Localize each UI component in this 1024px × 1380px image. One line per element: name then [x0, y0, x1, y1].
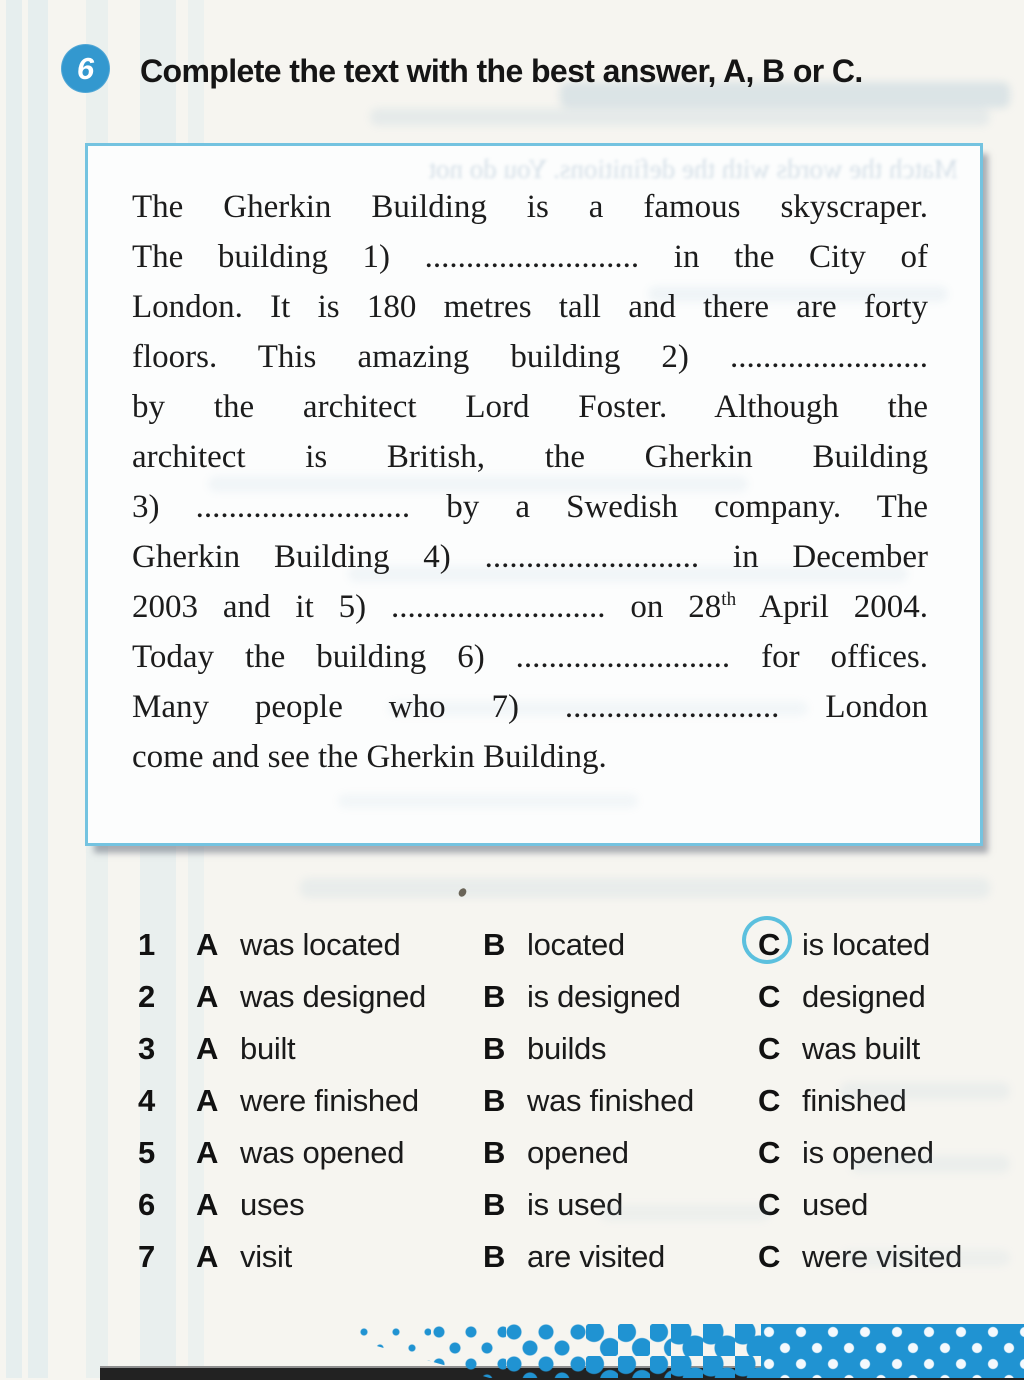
passage-box: Match the words with the definitions. Yo…: [85, 143, 983, 846]
option-row-2: 2 A was designed B is designed C designe…: [138, 971, 1024, 1023]
passage-line-part: 2003 and it 5) .........................…: [132, 589, 721, 625]
passage-line: Many people who 7) .....................…: [132, 682, 928, 732]
option-letter-c: C: [758, 979, 802, 1015]
halftone-band: [506, 1324, 586, 1378]
question-number: 7: [138, 1239, 196, 1275]
option-letter-a: A: [196, 1187, 240, 1223]
option-text-a: was designed: [240, 979, 483, 1015]
passage-line: London. It is 180 metres tall and there …: [132, 282, 928, 332]
option-letter-c-circled: C: [758, 927, 802, 963]
option-letter-b: B: [483, 1135, 527, 1171]
option-text-c: finished: [802, 1083, 1024, 1119]
passage-text: The Gherkin Building is a famous skyscra…: [132, 182, 928, 782]
option-text-c: were visited: [802, 1239, 1024, 1275]
halftone-band: [761, 1324, 1024, 1378]
scanned-textbook-page: { "header": { "number": "6", "title": "C…: [0, 0, 1024, 1378]
ordinal-superscript: th: [721, 589, 736, 610]
circled-answer-ring: [742, 916, 792, 964]
passage-line: Gherkin Building 4) ....................…: [132, 532, 928, 582]
question-number: 6: [138, 1187, 196, 1223]
option-row-7: 7 A visit B are visited C were visited: [138, 1231, 1024, 1283]
option-letter-a: A: [196, 1135, 240, 1171]
ink-speck: [457, 887, 468, 898]
exercise-number-badge: 6: [61, 44, 110, 93]
passage-line: 3) .......................... by a Swedi…: [132, 482, 928, 532]
option-text-a: built: [240, 1031, 483, 1067]
passage-line: 2003 and it 5) .........................…: [132, 582, 928, 632]
option-letter-b: B: [483, 1083, 527, 1119]
passage-line: The building 1) ........................…: [132, 232, 928, 282]
question-number: 4: [138, 1083, 196, 1119]
passage-line: come and see the Gherkin Building.: [132, 732, 928, 782]
option-text-b: located: [527, 927, 758, 963]
option-letter-c: C: [758, 1083, 802, 1119]
option-letter-a: A: [196, 927, 240, 963]
answer-options: 1 A was located B located C is located 2…: [0, 919, 1024, 1283]
option-text-b: is designed: [527, 979, 758, 1015]
option-letter-a: A: [196, 979, 240, 1015]
option-letter-c: C: [758, 1135, 802, 1171]
question-number: 3: [138, 1031, 196, 1067]
option-text-a: was located: [240, 927, 483, 963]
show-through-smudge: [338, 794, 638, 808]
option-text-c: is opened: [802, 1135, 1024, 1171]
passage-line: floors. This amazing building 2) .......…: [132, 332, 928, 382]
halftone-band: [671, 1324, 761, 1378]
option-row-4: 4 A were finished B was finished C finis…: [138, 1075, 1024, 1127]
option-letter-b: B: [483, 1187, 527, 1223]
passage-line: The Gherkin Building is a famous skyscra…: [132, 182, 928, 232]
option-row-6: 6 A uses B is used C used: [138, 1179, 1024, 1231]
exercise-title: Complete the text with the best answer, …: [140, 53, 1000, 90]
option-text-a: visit: [240, 1239, 483, 1275]
option-letter-b: B: [483, 1239, 527, 1275]
question-number: 2: [138, 979, 196, 1015]
option-text-c: is located: [802, 927, 1024, 963]
passage-line: architect is British, the Gherkin Buildi…: [132, 432, 928, 482]
option-text-c: was built: [802, 1031, 1024, 1067]
exercise-number: 6: [77, 51, 94, 87]
passage-line-part: April 2004.: [736, 589, 928, 625]
option-letter-a: A: [196, 1239, 240, 1275]
show-through-smudge: [370, 108, 990, 126]
halftone-band: [586, 1324, 671, 1378]
option-letter-c: C: [758, 1187, 802, 1223]
option-letter-b: B: [483, 979, 527, 1015]
option-text-b: opened: [527, 1135, 758, 1171]
question-number: 5: [138, 1135, 196, 1171]
option-letter-a: A: [196, 1031, 240, 1067]
option-row-5: 5 A was opened B opened C is opened: [138, 1127, 1024, 1179]
show-through-smudge: [300, 878, 990, 898]
option-letter-c: C: [758, 1031, 802, 1067]
option-letter-b: B: [483, 1031, 527, 1067]
option-letter-a: A: [196, 1083, 240, 1119]
option-text-b: was finished: [527, 1083, 758, 1119]
option-row-3: 3 A built B builds C was built: [138, 1023, 1024, 1075]
passage-line: by the architect Lord Foster. Although t…: [132, 382, 928, 432]
show-through-text: Match the words with the definitions. Yo…: [128, 154, 958, 185]
option-text-a: uses: [240, 1187, 483, 1223]
question-number: 1: [138, 927, 196, 963]
option-row-1: 1 A was located B located C is located: [138, 919, 1024, 971]
option-text-a: were finished: [240, 1083, 483, 1119]
option-letter-b: B: [483, 927, 527, 963]
option-text-c: used: [802, 1187, 1024, 1223]
option-text-c: designed: [802, 979, 1024, 1015]
option-text-b: builds: [527, 1031, 758, 1067]
option-text-a: was opened: [240, 1135, 483, 1171]
option-letter-c: C: [758, 1239, 802, 1275]
passage-line: Today the building 6) ..................…: [132, 632, 928, 682]
option-text-b: are visited: [527, 1239, 758, 1275]
option-text-b: is used: [527, 1187, 758, 1223]
